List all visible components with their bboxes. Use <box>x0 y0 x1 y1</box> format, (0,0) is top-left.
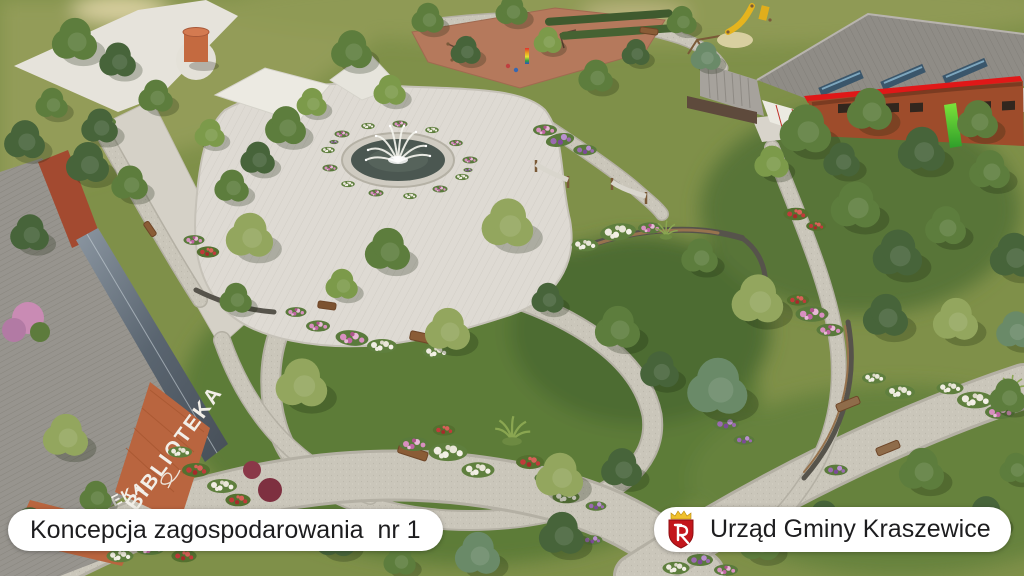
park-scene-illustration: BIBLIOTEKA BIBLIOTEKA <box>0 0 1024 576</box>
rainbow-pole <box>525 48 529 64</box>
caption-office: Urząd Gminy Kraszewice <box>654 507 1011 552</box>
caption-concept-title: Koncepcja zagospodarowania nr 1 <box>8 509 443 551</box>
kraszewice-crest-icon <box>664 510 698 550</box>
park-render: BIBLIOTEKA BIBLIOTEKA <box>0 0 1024 576</box>
caption-concept-text: Koncepcja zagospodarowania nr 1 <box>30 518 421 543</box>
crest-crown <box>671 511 691 519</box>
caption-office-text: Urząd Gminy Kraszewice <box>710 517 991 542</box>
